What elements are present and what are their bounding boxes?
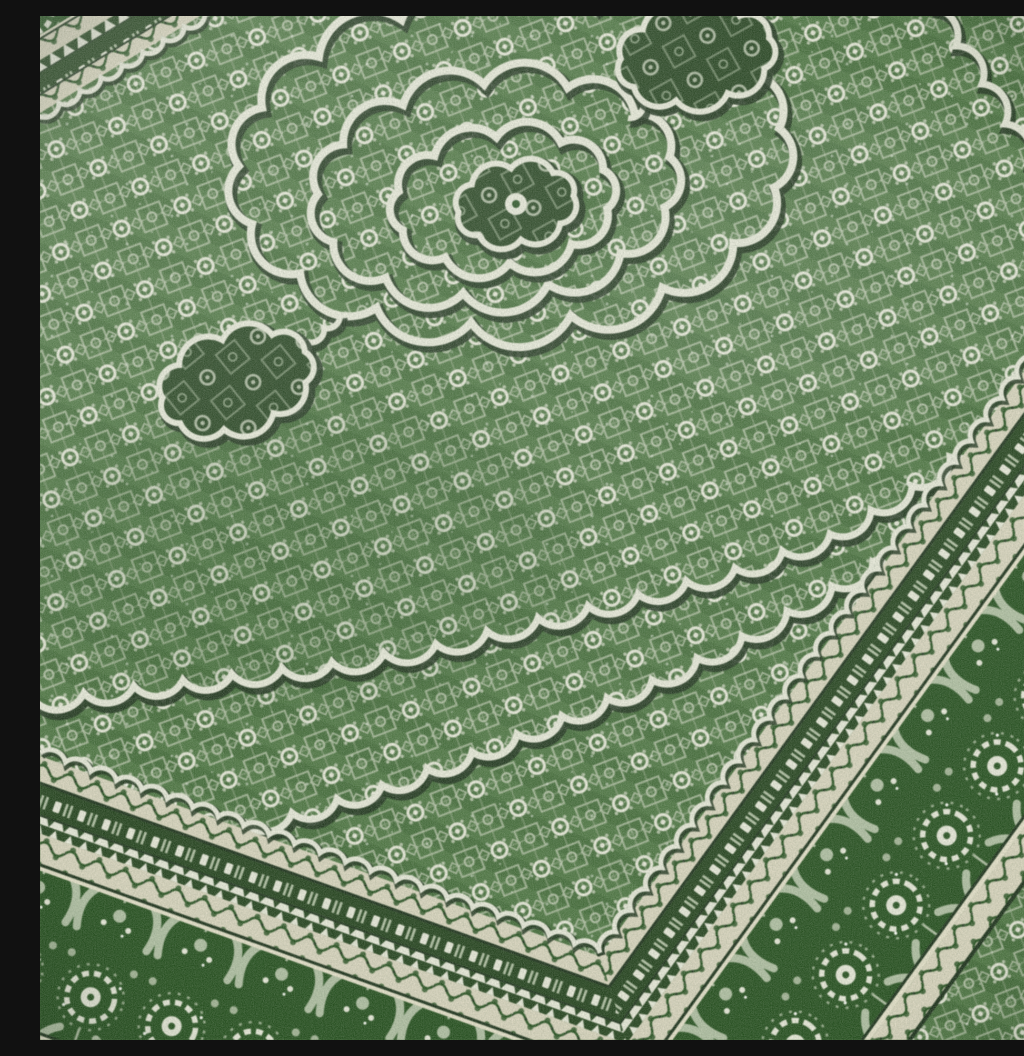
rug-photograph: Angled close-up photograph of a green Pe…	[40, 16, 1024, 1040]
grain-shadow-overlay	[40, 16, 1024, 1040]
rug-photo-svg	[40, 16, 1024, 1040]
